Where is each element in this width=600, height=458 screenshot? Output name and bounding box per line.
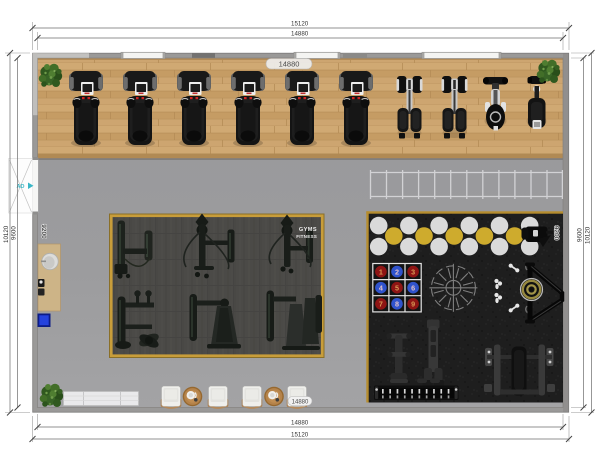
svg-text:14880: 14880 <box>291 420 309 427</box>
svg-text:9600: 9600 <box>577 228 584 242</box>
svg-text:8: 8 <box>395 300 399 309</box>
svg-text:14880: 14880 <box>291 31 309 38</box>
svg-text:9200: 9200 <box>40 224 47 239</box>
svg-text:14880: 14880 <box>279 60 300 69</box>
svg-text:15120: 15120 <box>291 21 309 28</box>
svg-text:1: 1 <box>379 268 383 277</box>
svg-text:3: 3 <box>411 268 415 277</box>
svg-text:9600: 9600 <box>11 226 18 240</box>
svg-text:10120: 10120 <box>3 225 10 243</box>
svg-text:2: 2 <box>395 268 399 277</box>
svg-text:GYMS: GYMS <box>299 227 317 233</box>
svg-text:6: 6 <box>411 284 415 293</box>
svg-text:7: 7 <box>379 300 383 309</box>
svg-text:9: 9 <box>411 300 415 309</box>
svg-text:15120: 15120 <box>291 432 309 439</box>
svg-text:14880: 14880 <box>292 400 309 406</box>
svg-text:5: 5 <box>395 284 399 293</box>
svg-text:FITNESS: FITNESS <box>296 234 317 239</box>
svg-text:9200: 9200 <box>553 226 560 241</box>
svg-text:4: 4 <box>379 284 383 293</box>
svg-text:10120: 10120 <box>585 226 592 244</box>
